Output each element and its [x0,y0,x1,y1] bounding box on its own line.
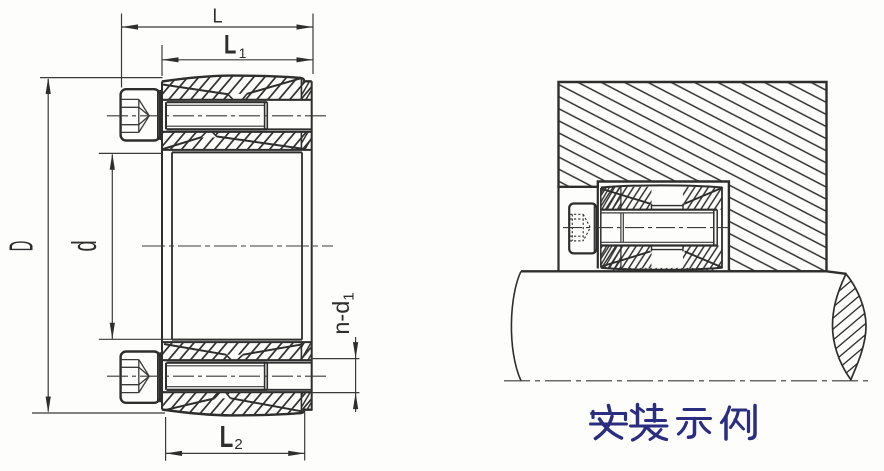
svg-text:L: L [220,419,234,453]
svg-text:2: 2 [234,436,242,453]
svg-text:1: 1 [239,45,247,61]
svg-text:L: L [212,6,222,28]
svg-text:L: L [224,30,236,61]
svg-text:d: d [66,240,104,251]
svg-text:D: D [4,241,40,252]
